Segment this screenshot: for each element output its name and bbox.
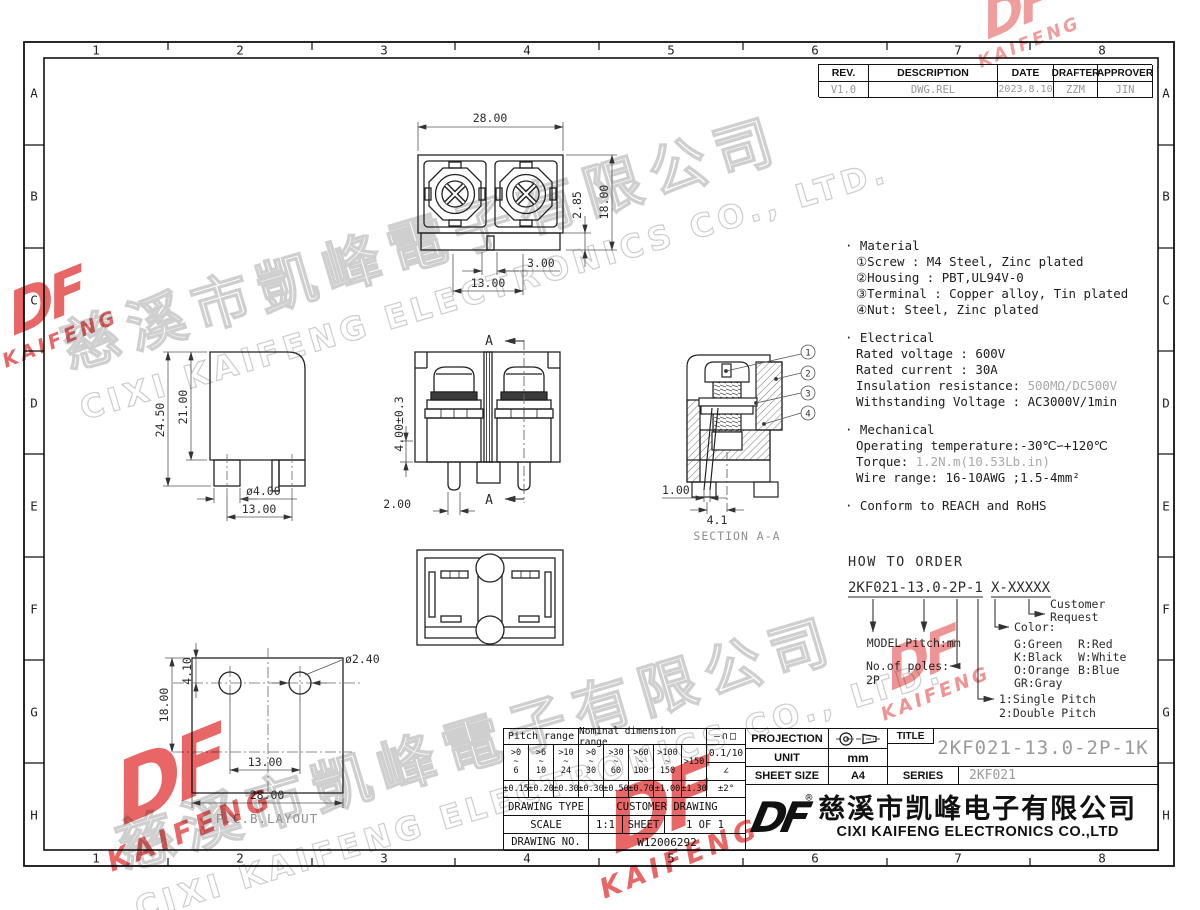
note-mechanical-title: · Mechanical	[845, 422, 1163, 438]
order-title: HOW TO ORDER	[848, 554, 964, 570]
company-name-english: CIXI KAIFENG ELECTRONICS CO.,LTD	[837, 824, 1119, 840]
dim-pcb-offset: 4.10	[180, 657, 194, 685]
zone-row-right-f: F	[1162, 602, 1170, 617]
zone-col-bottom-6: 6	[811, 851, 819, 866]
note-withstanding: Withstanding Voltage : AC3000V/1min	[845, 394, 1163, 410]
tol-value-5: ±0.50	[604, 781, 629, 798]
tolerance-table: Pitch range Nominal dimension range —∩□ …	[503, 728, 745, 850]
order-poles-value: 2P	[866, 673, 880, 687]
tol-value-6: ±0.70	[629, 781, 654, 798]
series-value: 2KF021	[959, 767, 1159, 785]
note-insulation: Insulation resistance: 500MΩ/DC500V	[845, 378, 1163, 394]
rev-header-approver: APPROVER	[1098, 65, 1153, 82]
dim-side-pin: ø4.00	[246, 484, 281, 498]
zone-col-bottom-7: 7	[954, 851, 962, 866]
zone-row-left-d: D	[30, 396, 38, 411]
zone-row-right-a: A	[1162, 86, 1170, 101]
tol-range-6: >60 ~ 100	[629, 745, 654, 781]
tol-value-8: ±1.30	[682, 781, 707, 798]
zone-col-bottom-8: 8	[1098, 851, 1106, 866]
order-double-pitch: 2:Double Pitch	[999, 706, 1096, 720]
zone-row-right-g: G	[1162, 705, 1170, 720]
rev-value-approver: JIN	[1098, 82, 1153, 98]
balloon-1: 1	[805, 349, 810, 359]
zone-col-top-8: 8	[1098, 43, 1106, 58]
order-poles-label: No.of poles:	[866, 659, 949, 673]
zone-row-right-h: H	[1162, 808, 1170, 823]
section-caption: SECTION A-A	[693, 529, 780, 543]
note-material-terminal: ③Terminal : Copper alloy, Tin plated	[845, 286, 1163, 302]
dim-section-lever: 1.00	[662, 483, 690, 497]
drawing-type-label: DRAWING TYPE	[504, 798, 589, 816]
note-operating-temp: Operating temperature:-30℃∽+120℃	[845, 438, 1163, 454]
drawing-no-label: DRAWING NO.	[504, 834, 589, 851]
order-color-green: G:Green	[1014, 637, 1062, 651]
company-cell: DF ® 慈溪市凯峰电子有限公司 CIXI KAIFENG ELECTRONIC…	[746, 785, 1159, 851]
title-label: TITLE	[888, 729, 934, 744]
dim-side-total: 24.50	[153, 403, 167, 438]
dim-pcb-pitch: 13.00	[248, 755, 283, 769]
series-label: SERIES	[888, 767, 959, 785]
specification-notes: · Material ①Screw : M4 Steel, Zinc plate…	[845, 238, 1163, 514]
title-value: 2KF021-13.0-2P-1K	[897, 737, 1148, 759]
scale-value: 1:1	[589, 816, 623, 834]
rev-value-date: 2023.8.10	[998, 82, 1054, 98]
dim-side-pitch: 13.00	[242, 502, 277, 516]
zone-row-left-f: F	[30, 602, 38, 617]
company-df-logo: DF	[748, 797, 810, 839]
note-material-screw: ①Screw : M4 Steel, Zinc plated	[845, 254, 1163, 270]
order-color-red: R:Red	[1078, 637, 1113, 651]
zone-col-bottom-4: 4	[523, 851, 531, 866]
order-color-blue: B:Blue	[1078, 663, 1120, 677]
rev-header-rev: REV.	[819, 65, 869, 82]
zone-row-right-b: B	[1162, 189, 1170, 204]
rev-value-rev: V1.0	[819, 82, 869, 98]
order-customer: Customer	[1050, 597, 1105, 611]
note-torque-label: Torque:	[856, 454, 916, 469]
zone-col-top-3: 3	[380, 43, 388, 58]
tol-flatness: 0.1/10	[707, 745, 746, 763]
order-request: Request	[1050, 610, 1098, 624]
zone-col-top-5: 5	[667, 43, 675, 58]
tol-range-8: >150	[682, 745, 707, 781]
front-view: A A 4.00±0.3 2.00	[383, 334, 560, 515]
note-insulation-value: 500MΩ/DC500V	[1028, 378, 1118, 393]
section-label-a-bottom: A	[485, 493, 493, 508]
dim-pcb-height: 18.00	[157, 688, 171, 723]
tol-angle-symbol: ∠	[707, 763, 746, 781]
zone-row-left-e: E	[30, 499, 38, 514]
note-torque: Torque: 1.2N.m(10.53Lb.in)	[845, 454, 1163, 470]
zone-col-top-6: 6	[811, 43, 819, 58]
dim-front-open: 4.00±0.3	[392, 396, 406, 451]
tol-range-3: >10 ~ 24	[554, 745, 579, 781]
note-material-nut: ④Nut: Steel, Zinc plated	[845, 302, 1163, 318]
dim-pcb-hole: ø2.40	[345, 652, 380, 666]
zone-col-top-4: 4	[523, 43, 531, 58]
zone-col-bottom-3: 3	[380, 851, 388, 866]
order-color-white: W:White	[1078, 650, 1127, 664]
unit-label: UNIT	[746, 749, 829, 767]
how-to-order: HOW TO ORDER 2KF021-13.0-2P-1 X-XXXXX MO…	[848, 554, 1127, 720]
rev-value-drafter: ZZM	[1054, 82, 1098, 98]
dim-side-body: 21.00	[176, 390, 190, 425]
note-rated-current: Rated current : 30A	[845, 362, 1163, 378]
sheet-value: 1 OF 1	[665, 816, 746, 834]
note-insulation-label: Insulation resistance:	[856, 378, 1028, 393]
balloon-2: 2	[805, 370, 810, 380]
tol-range-1: >0 ~ 6	[504, 745, 529, 781]
drawing-no-value: W12006292	[589, 834, 746, 851]
projection-symbol-cell	[829, 729, 888, 749]
drawing-sheet: 慈溪市凱峰電子有限公司 CIXI KAIFENG ELECTRONICS CO.…	[0, 0, 1200, 910]
zone-row-right-e: E	[1162, 499, 1170, 514]
pcb-caption: P.C.B.LAYOUT	[216, 811, 318, 826]
rev-header-drafter: DRAFTER	[1054, 65, 1098, 82]
order-code-suffix: X-XXXXX	[991, 580, 1051, 596]
rev-value-description: DWG.REL	[869, 82, 998, 98]
tol-range-4: >0 ~ 30	[579, 745, 604, 781]
order-single-pitch: 1:Single Pitch	[999, 692, 1096, 706]
zone-col-top-1: 1	[92, 43, 100, 58]
dim-top-notch: 3.00	[527, 256, 555, 270]
projection-symbol-icon	[835, 731, 881, 747]
dim-top-width: 28.00	[473, 111, 508, 125]
zone-row-left-h: H	[30, 808, 38, 823]
scale-label: SCALE	[504, 816, 589, 834]
note-material-housing: ②Housing : PBT,UL94V-0	[845, 270, 1163, 286]
sheet-label: SHEET	[623, 816, 665, 834]
dim-section-offset: 4.1	[707, 513, 728, 527]
balloon-4: 4	[805, 410, 810, 420]
tol-range-5: >30 ~ 60	[604, 745, 629, 781]
rev-header-date: DATE	[998, 65, 1054, 82]
tol-range-2: >6 ~ 10	[529, 745, 554, 781]
tol-symbols: —∩□	[707, 729, 746, 745]
zone-row-left-a: A	[30, 86, 38, 101]
balloon-3: 3	[805, 390, 810, 400]
zone-row-right-d: D	[1162, 396, 1170, 411]
top-view: 28.00 18.00 2.85 3.00 13.00	[418, 111, 617, 295]
unit-value: mm	[829, 749, 888, 767]
dim-top-step: 2.85	[570, 191, 584, 219]
tol-value-4: ±0.30	[579, 781, 604, 798]
order-pitch-label: Pitch:mm	[905, 636, 960, 650]
projection-label: PROJECTION	[746, 729, 829, 749]
tol-pitch-header: Pitch range	[504, 729, 579, 745]
title-cell: TITLE 2KF021-13.0-2P-1K	[888, 729, 1159, 767]
section-view: 1 2 3 4 1.00 4.1 SECTION A-A	[662, 345, 815, 543]
tol-range-7: >100 ~ 150	[654, 745, 682, 781]
order-color-gray: GR:Gray	[1014, 676, 1063, 690]
zone-row-left-c: C	[30, 293, 38, 308]
drawing-type-value: CUSTOMER DRAWING	[589, 798, 746, 816]
note-electrical-title: · Electrical	[845, 330, 1163, 346]
tol-value-1: ±0.15	[504, 781, 529, 798]
tol-value-2: ±0.20	[529, 781, 554, 798]
tol-value-7: ±1.00	[654, 781, 682, 798]
zone-row-right-c: C	[1162, 293, 1170, 308]
revision-table: REV. DESCRIPTION DATE DRAFTER APPROVER V…	[818, 64, 1152, 97]
tol-nominal-header: Nominal dimension range	[579, 729, 707, 745]
order-code-main: 2KF021-13.0-2P-1	[848, 580, 983, 596]
title-block: PROJECTION TITLE 2KF021-13.0-2P-1K UNIT …	[745, 728, 1158, 850]
tol-value-3: ±0.30	[554, 781, 579, 798]
pcb-layout-view: 18.00 4.10 ø2.40 13.00 28.00 P.C.B.LAYOU…	[157, 643, 380, 826]
zone-row-left-b: B	[30, 189, 38, 204]
note-torque-value: 1.2N.m(10.53Lb.in)	[916, 454, 1050, 469]
zone-col-bottom-5: 5	[667, 851, 675, 866]
zone-col-bottom-1: 1	[92, 851, 100, 866]
order-color-black: K:Black	[1014, 650, 1063, 664]
bottom-view	[417, 550, 563, 645]
order-model-label: MODEL	[867, 636, 902, 650]
note-material-title: · Material	[845, 238, 1163, 254]
dim-pcb-width: 28.00	[250, 788, 285, 802]
zone-row-left-g: G	[30, 705, 38, 720]
sheet-size-value: A4	[829, 767, 888, 785]
note-rated-voltage: Rated voltage : 600V	[845, 346, 1163, 362]
rev-header-description: DESCRIPTION	[869, 65, 998, 82]
company-name-chinese: 慈溪市凯峰电子有限公司	[818, 795, 1137, 825]
tol-angle-value: ±2°	[707, 781, 746, 798]
zone-col-bottom-2: 2	[236, 851, 244, 866]
note-wire-range: Wire range: 16-10AWG ;1.5-4mm²	[845, 470, 1163, 486]
order-color-orange: O:Orange	[1014, 663, 1069, 677]
sheet-size-label: SHEET SIZE	[746, 767, 829, 785]
note-conform: · Conform to REACH and RoHS	[845, 498, 1163, 514]
section-label-a-top: A	[485, 334, 493, 349]
dim-top-height: 18.00	[597, 185, 611, 220]
side-view: 24.50 21.00 ø4.00 13.00	[153, 352, 305, 521]
dim-front-pin: 2.00	[383, 497, 411, 511]
zone-col-top-2: 2	[236, 43, 244, 58]
zone-col-top-7: 7	[954, 43, 962, 58]
dim-top-pitch: 13.00	[471, 276, 506, 290]
